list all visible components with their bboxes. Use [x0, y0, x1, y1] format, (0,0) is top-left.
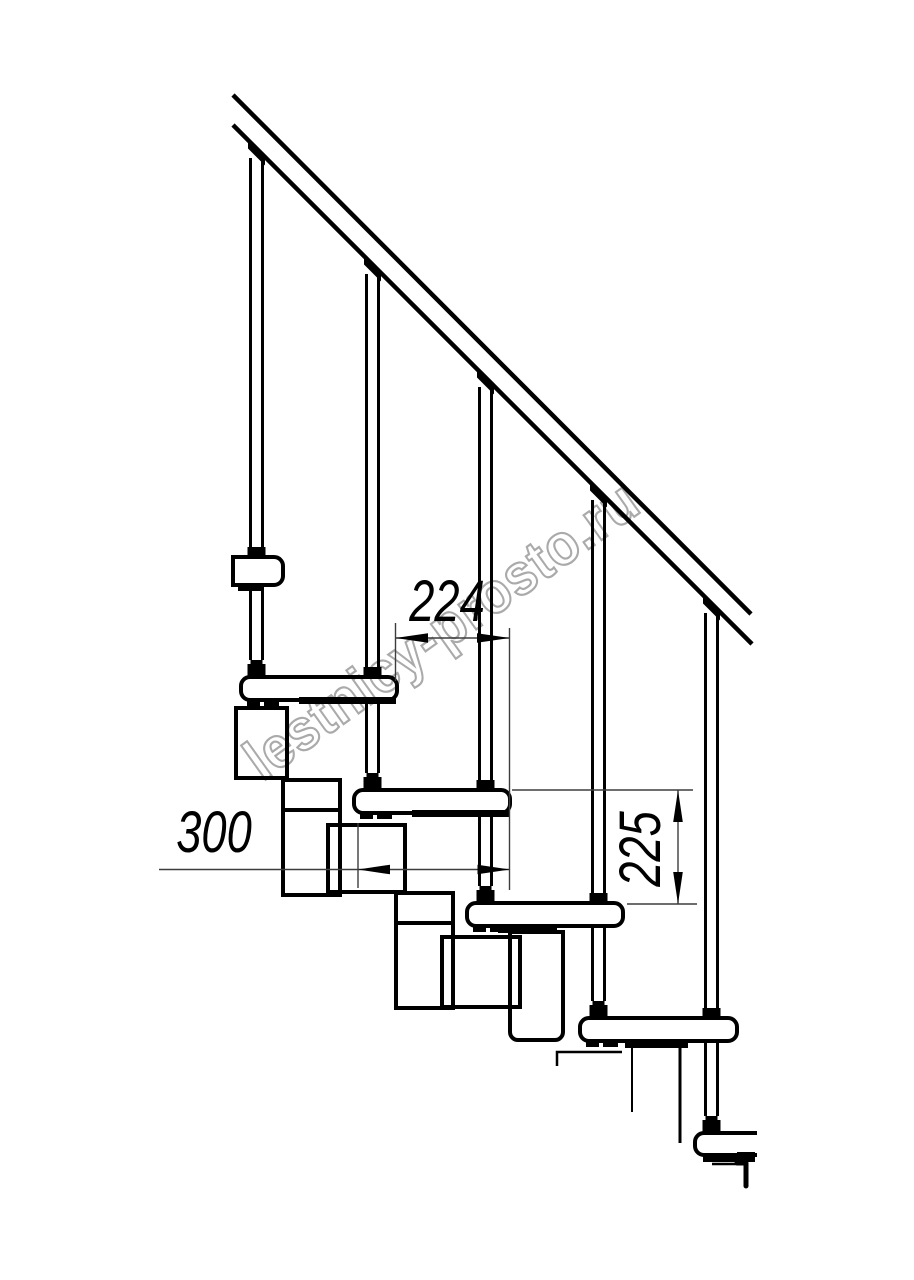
tread-3 — [354, 790, 510, 813]
dimension-value-225: 225 — [609, 810, 674, 887]
baluster-4-collar — [590, 893, 608, 902]
baluster-2-foot — [364, 773, 382, 789]
arrowhead-down — [673, 872, 683, 904]
baluster-2-collar — [364, 667, 382, 676]
staircase-technical-drawing: lestnicy-prosto.ru — [0, 0, 914, 1280]
tread-3-brackets — [360, 810, 509, 819]
baluster-1-collar — [248, 547, 266, 556]
tread-4-brackets — [473, 924, 557, 933]
stringer-module-4 — [396, 893, 453, 1008]
baluster-3-foot — [477, 886, 495, 902]
dimension-value-224: 224 — [408, 570, 484, 635]
stringer-module-2 — [283, 780, 340, 895]
tread-5 — [580, 1018, 737, 1041]
arrowhead-right — [477, 633, 510, 643]
tread-6 — [695, 1133, 757, 1155]
baluster-5-foot — [703, 1116, 721, 1132]
arrowhead-left — [358, 865, 390, 875]
tread-1-bracket — [238, 585, 262, 591]
tread-6-brackets — [703, 1152, 755, 1162]
arrowhead-up — [673, 790, 683, 822]
baluster-3-collar — [477, 780, 495, 789]
arrowhead-right — [478, 865, 510, 875]
stringer-tail-end — [737, 1163, 746, 1186]
tread-1 — [233, 557, 283, 585]
stringer-tail-bracket — [557, 1052, 622, 1066]
baluster-5-collar — [703, 1008, 721, 1017]
tread-4 — [467, 903, 623, 926]
fittings — [238, 143, 755, 1163]
staircase-structure — [233, 95, 757, 1186]
dimension-value-300: 300 — [176, 801, 252, 866]
baluster-1-foot — [248, 660, 266, 676]
baluster-4-foot — [590, 1001, 608, 1017]
stringer-module-6 — [510, 932, 563, 1040]
